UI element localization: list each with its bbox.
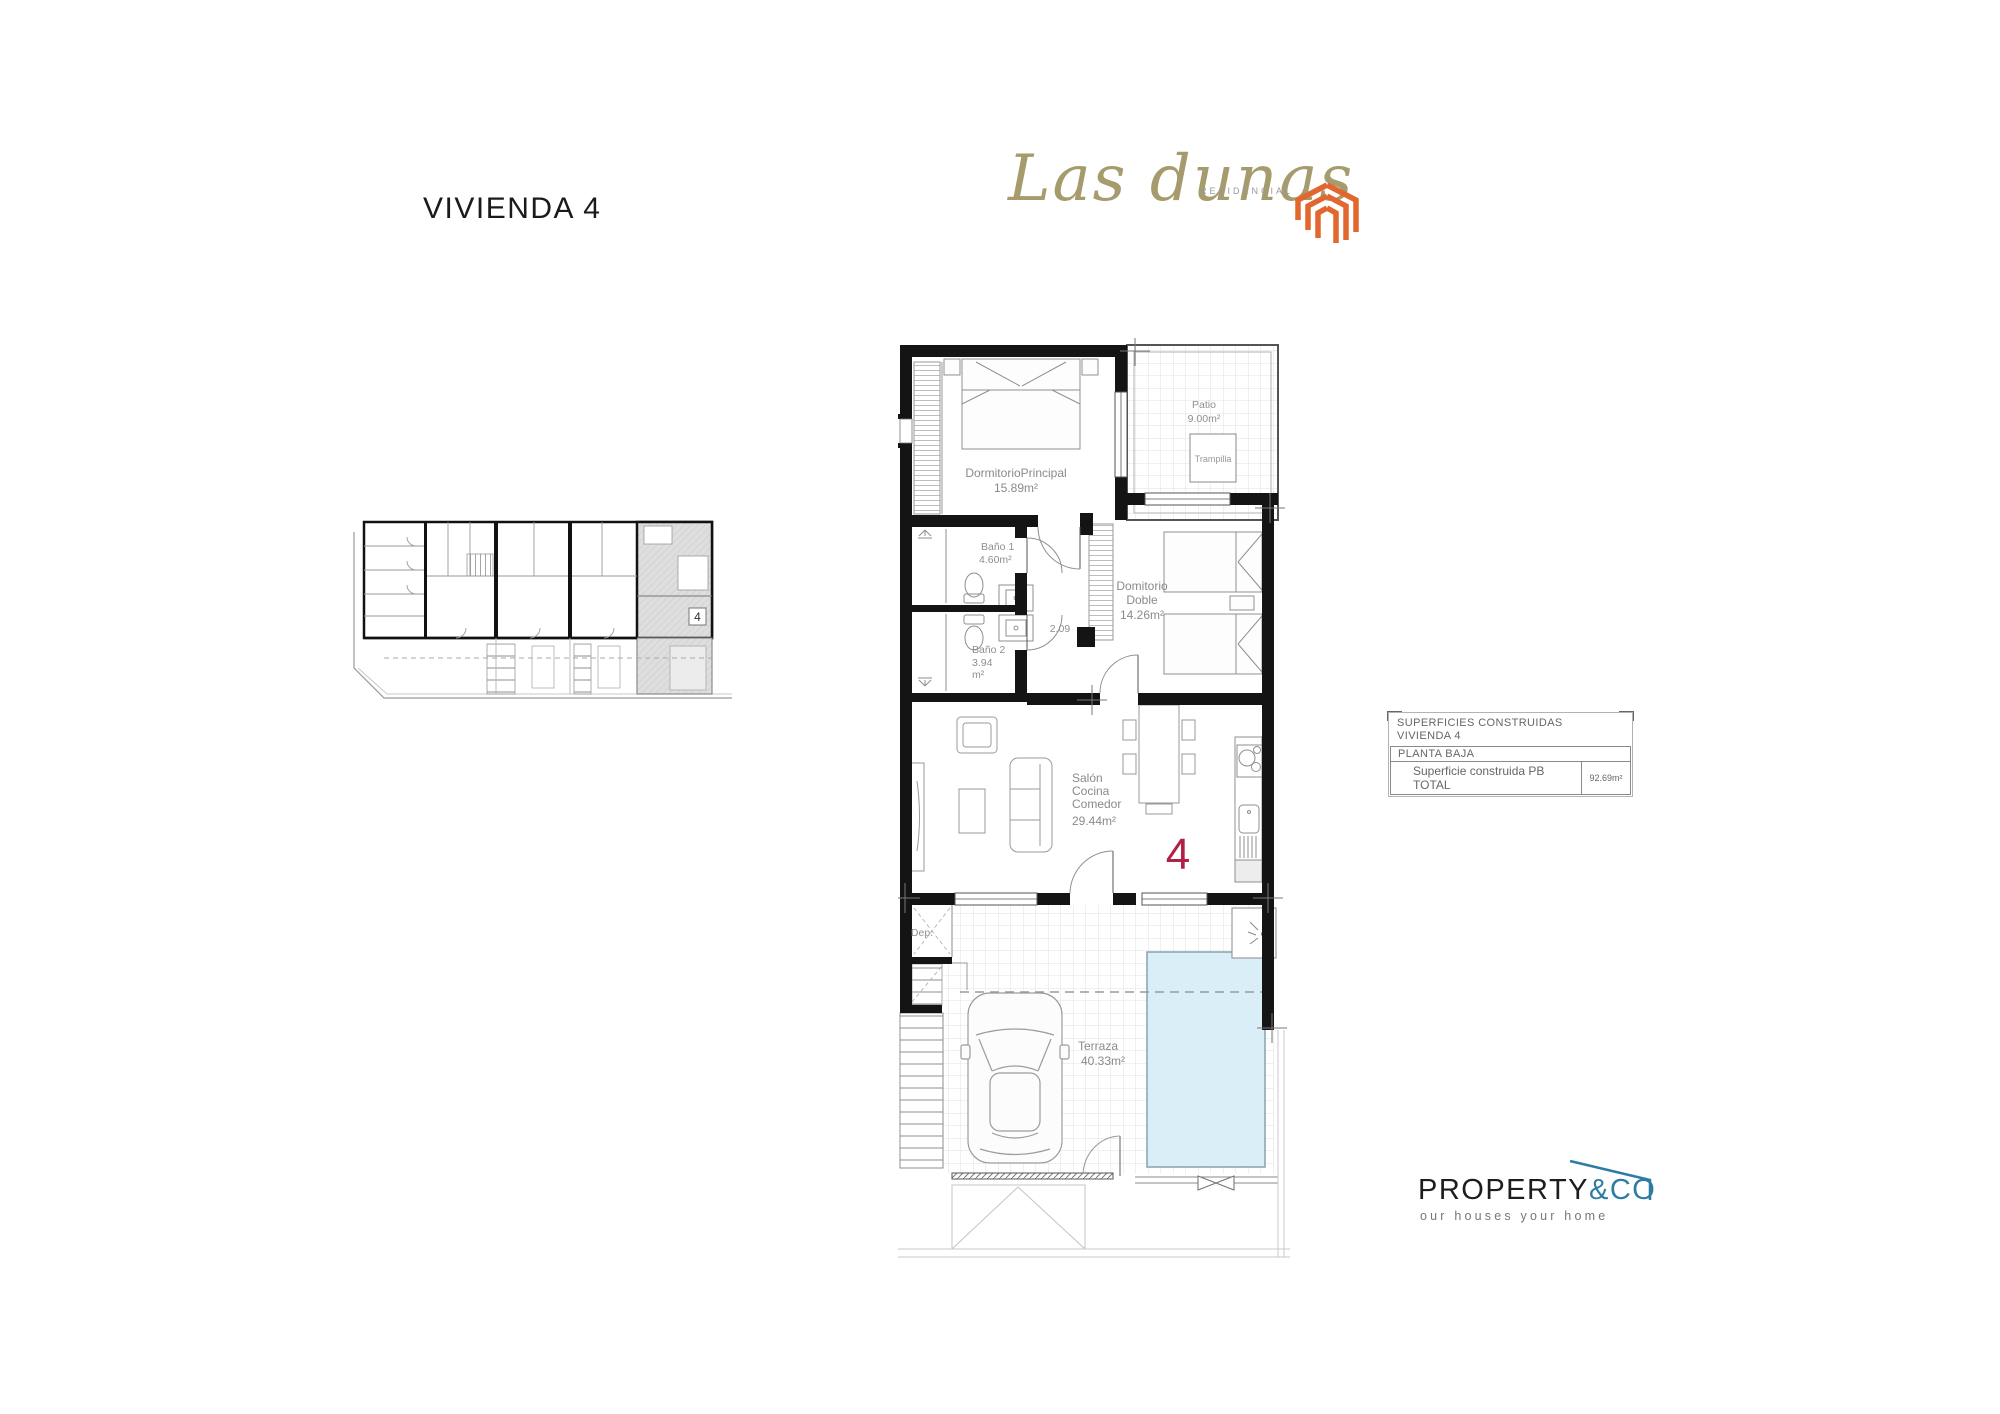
areas-table-title-line2: VIVIENDA 4 — [1397, 730, 1624, 743]
site-stairs — [574, 644, 591, 694]
room-area-patio: 9.00m² — [1188, 413, 1221, 425]
room-label-salon-l3: Comedor — [1072, 797, 1121, 811]
room-area-salon: 29.44m² — [1072, 814, 1116, 828]
agency-name-co: &CO — [1589, 1174, 1656, 1206]
room-label-dormitorio-doble-l1: Domitorio — [1116, 579, 1168, 593]
areas-table-title-line1: SUPERFICIES CONSTRUIDAS — [1397, 717, 1624, 730]
corridor-dimension: 2.09 — [1050, 623, 1071, 635]
unit-number: 4 — [1166, 830, 1190, 879]
kitchen-counter — [1235, 737, 1262, 882]
site-stairs — [487, 644, 515, 694]
areas-table-total-label: Superficie construida PB TOTAL — [1391, 762, 1581, 794]
room-label-bano2: Baño 2 — [972, 644, 1005, 656]
single-beds — [1164, 532, 1262, 674]
room-label-dormitorio-doble-l2: Doble — [1126, 593, 1158, 607]
swimming-pool — [1147, 952, 1265, 1167]
room-label-dep: Dep. — [911, 927, 933, 939]
room-label-dormitorio-principal: DormitorioPrincipal — [965, 466, 1066, 480]
room-area-bano2-l2: m² — [972, 669, 985, 681]
las-dunas-logo-icon — [1294, 182, 1360, 246]
room-area-dormitorio-principal: 15.89m² — [994, 481, 1038, 495]
living-furniture — [910, 717, 1052, 871]
floor-plan-vivienda-4: DormitorioPrincipal 15.89m² Patio 9.00m²… — [898, 338, 1298, 1393]
site-plan-overview: 4 — [348, 518, 733, 718]
double-bed — [944, 359, 1098, 449]
driveway-canopy — [952, 1185, 1085, 1249]
areas-table-total-value: 92.69m² — [1581, 762, 1630, 794]
agency-name-property: PROPERTY — [1418, 1174, 1589, 1206]
areas-table-header: SUPERFICIES CONSTRUIDAS VIVIENDA 4 — [1389, 713, 1632, 746]
room-area-dormitorio-doble: 14.26m² — [1120, 608, 1164, 622]
room-label-terraza: Terraza — [1078, 1039, 1118, 1053]
wardrobe — [914, 362, 940, 514]
agency-name: PROPERTY&CO — [1418, 1174, 1656, 1207]
room-label-patio: Patio — [1192, 399, 1216, 411]
wardrobe — [1089, 524, 1113, 640]
room-area-terraza: 40.33m² — [1081, 1054, 1125, 1068]
wall-niche — [900, 419, 912, 443]
parked-car — [961, 993, 1069, 1163]
room-label-salon-l2: Cocina — [1072, 784, 1110, 798]
agency-logo: PROPERTY&CO our houses your home — [1418, 1154, 1688, 1244]
areas-table: SUPERFICIES CONSTRUIDAS VIVIENDA 4 PLANT… — [1388, 712, 1633, 797]
room-label-salon-l1: Salón — [1072, 771, 1103, 785]
plan-sheet: VIVIENDA 4 Las dunas RESIDENCIAL — [0, 0, 2000, 1414]
site-stairs — [467, 554, 493, 576]
page-title: VIVIENDA 4 — [423, 192, 601, 226]
trampilla-label: Trampilla — [1195, 454, 1232, 464]
agency-tagline: our houses your home — [1420, 1209, 1608, 1223]
room-area-bano1: 4.60m² — [979, 554, 1012, 566]
brand-residencial-label: RESIDENCIAL — [1200, 186, 1293, 196]
room-label-bano1: Baño 1 — [981, 541, 1014, 553]
areas-table-total-row: Superficie construida PB TOTAL 92.69m² — [1390, 762, 1631, 795]
dining-table — [1123, 705, 1195, 814]
site-unit-badge: 4 — [694, 610, 701, 624]
areas-table-section-planta-baja: PLANTA BAJA — [1390, 746, 1631, 762]
room-area-bano2-l1: 3.94 — [972, 657, 993, 669]
